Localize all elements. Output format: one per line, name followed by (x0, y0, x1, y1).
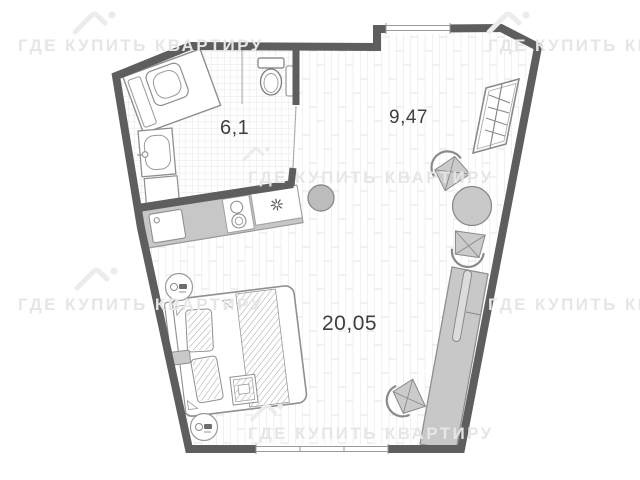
pillow-symbol (185, 309, 213, 352)
stove-symbol (222, 195, 254, 233)
ceiling-lamp-icon (191, 414, 218, 441)
window-symbol (256, 444, 388, 454)
kitchen-sink-symbol (149, 209, 186, 243)
bathroom-door-line (293, 106, 296, 168)
ceiling-lamp-icon (166, 274, 193, 301)
pouf-symbol (308, 185, 334, 211)
window-symbol (386, 23, 450, 34)
dining-table-symbol (453, 187, 492, 226)
floorplan-canvas: 6,1 9,47 20,05 ГДЕ КУПИТЬ КВАРТИРУ ГДЕ К… (0, 0, 640, 480)
floorplan-drawing (0, 0, 640, 480)
bed-symbol (161, 285, 307, 418)
bed-accessory (230, 374, 258, 405)
